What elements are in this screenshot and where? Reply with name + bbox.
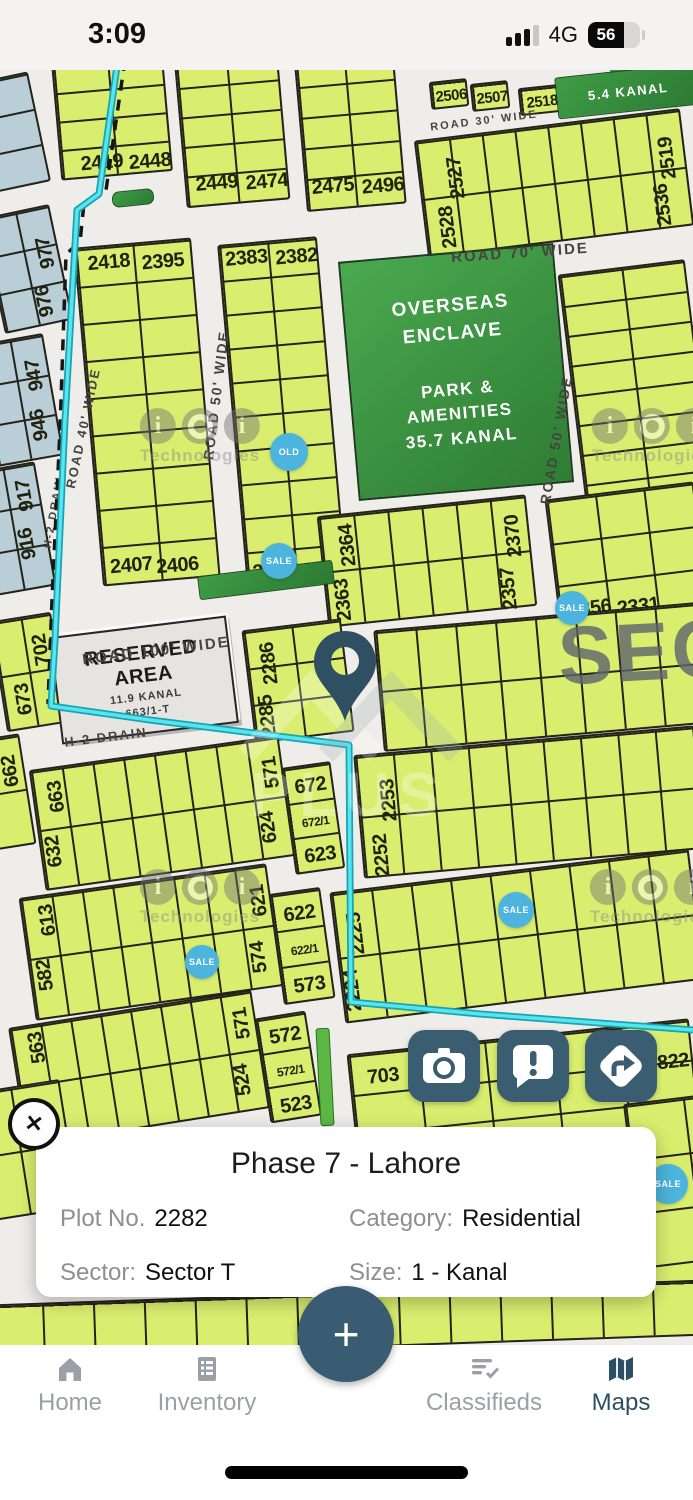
park-label: OVERSEAS ENCLAVE (343, 284, 559, 357)
network-type: 4G (549, 22, 578, 48)
watermark-circle-icon: i (140, 869, 176, 905)
iqi-watermark: iiTechnologies (140, 869, 260, 927)
green-strip (111, 188, 154, 208)
nav-item-maps[interactable]: Maps (551, 1353, 691, 1417)
map-icon (604, 1353, 638, 1385)
plot-grid-lines (0, 335, 62, 464)
camera-button[interactable] (408, 1030, 480, 1102)
plot-block[interactable] (0, 71, 51, 192)
field-label: Sector: (60, 1259, 136, 1287)
nav-label: Home (38, 1389, 102, 1417)
plot-grid-lines (560, 261, 693, 514)
plot-block[interactable]: 622622/1573 (268, 887, 335, 1005)
chat-alert-icon (501, 1034, 565, 1098)
field-label: Category: (349, 1205, 453, 1233)
watermark-circle-icon: i (674, 869, 693, 905)
directions-icon (589, 1034, 653, 1098)
sale-badge[interactable]: SALE (185, 945, 219, 979)
plot-block[interactable]: 24752496 (293, 46, 406, 212)
signal-strength-icon (506, 24, 539, 46)
plus-icon: + (333, 1307, 360, 1361)
field-value: 1 - Kanal (411, 1259, 507, 1287)
add-button[interactable]: + (298, 1286, 394, 1382)
watermark-circle-icon (182, 869, 218, 905)
plot-grid-lines (0, 74, 49, 190)
plot-grid-lines (0, 736, 34, 849)
sale-badge[interactable]: SALE (498, 892, 534, 928)
field-label: Plot No. (60, 1205, 145, 1233)
size-field: Size: 1 - Kanal (349, 1259, 638, 1287)
nav-item-home[interactable]: Home (0, 1353, 140, 1417)
watermark-brand-text: Technologies (590, 907, 693, 927)
battery-percent: 56 (588, 22, 624, 48)
battery-tip (642, 30, 645, 40)
nav-label: Maps (592, 1389, 651, 1417)
field-value: Residential (462, 1205, 581, 1233)
plot-number-field: Plot No. 2282 (60, 1205, 349, 1233)
watermark-circle-icon: i (676, 408, 693, 444)
plot-block[interactable]: 672672/1623 (281, 761, 346, 875)
field-value: 2282 (154, 1205, 207, 1233)
watermark-circle-icon: i (224, 869, 260, 905)
plot-block[interactable]: 2364236323702357 (317, 494, 538, 627)
field-label: Size: (349, 1259, 402, 1287)
plot-block[interactable]: 2527252825192536 (414, 108, 693, 258)
nav-label: Classifieds (426, 1389, 542, 1417)
inventory-icon (190, 1353, 224, 1385)
iqi-watermark: iiTechnologies (140, 408, 260, 466)
plot-block[interactable]: 977976 (0, 204, 74, 334)
sale-badge[interactable]: SALE (261, 543, 297, 579)
iqi-watermark: iiTechnologies (592, 408, 693, 466)
watermark-brand-text: Technologies (592, 446, 693, 466)
reserved-label: 663/1-T (125, 703, 171, 720)
plot-info-card: Phase 7 - Lahore Plot No. 2282 Category:… (36, 1127, 656, 1297)
category-field: Category: Residential (349, 1205, 638, 1233)
nav-item-inventory[interactable]: Inventory (137, 1353, 277, 1417)
classifieds-icon (467, 1353, 501, 1385)
watermark-circle-icon (632, 869, 668, 905)
plot-block[interactable]: 24192448 (51, 53, 173, 180)
battery-icon: 56 (588, 22, 640, 48)
watermark-brand-text: Technologies (140, 907, 260, 927)
plot-block[interactable]: 2506 (429, 78, 470, 110)
watermark-circle-icon: i (224, 408, 260, 444)
sale-badge[interactable]: SALE (555, 591, 589, 625)
camera-icon (412, 1034, 476, 1098)
plot-block[interactable]: 947946 (0, 333, 64, 467)
watermark-circle-icon: i (592, 408, 628, 444)
watermark-circle-icon: i (590, 869, 626, 905)
home-indicator[interactable] (225, 1466, 468, 1479)
card-title: Phase 7 - Lahore (36, 1147, 656, 1181)
plot-block[interactable]: 24492474 (174, 48, 291, 208)
iqi-watermark: iiTechnologies (590, 869, 693, 927)
selected-plot-pin (311, 628, 379, 724)
plot-block[interactable] (558, 259, 693, 517)
home-icon (53, 1353, 87, 1385)
watermark-brand-text: Technologies (140, 446, 260, 466)
plot-block[interactable]: 2507 (470, 80, 511, 112)
park-area[interactable]: OVERSEAS ENCLAVEPARK &AMENITIES35.7 KANA… (338, 243, 574, 501)
sector-field: Sector: Sector T (60, 1259, 349, 1287)
clock: 3:09 (72, 18, 162, 51)
watermark-circle-icon (634, 408, 670, 444)
report-button[interactable] (497, 1030, 569, 1102)
strip-label: 5.4 KANAL (587, 79, 669, 102)
old-badge[interactable]: OLD (270, 433, 308, 471)
status-bar: 3:09 4G 56 (0, 0, 693, 70)
nav-label: Inventory (158, 1389, 257, 1417)
field-value: Sector T (145, 1259, 235, 1287)
directions-button[interactable] (585, 1030, 657, 1102)
nav-item-classifieds[interactable]: Classifieds (414, 1353, 554, 1417)
watermark-circle-icon (182, 408, 218, 444)
road-label-text: H-2 DRAIN (42, 475, 67, 550)
watermark-circle-icon: i (140, 408, 176, 444)
